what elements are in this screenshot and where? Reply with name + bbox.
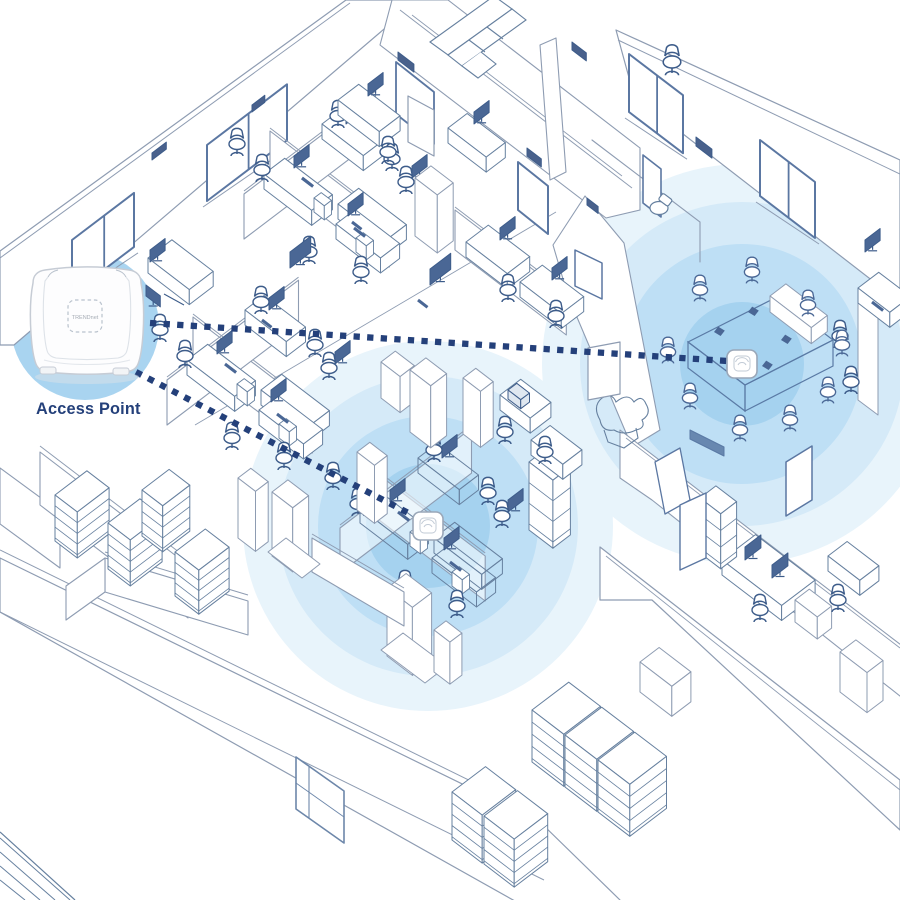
- svg-text:Access Point: Access Point: [36, 400, 141, 418]
- svg-text:TRENDnet: TRENDnet: [72, 315, 99, 321]
